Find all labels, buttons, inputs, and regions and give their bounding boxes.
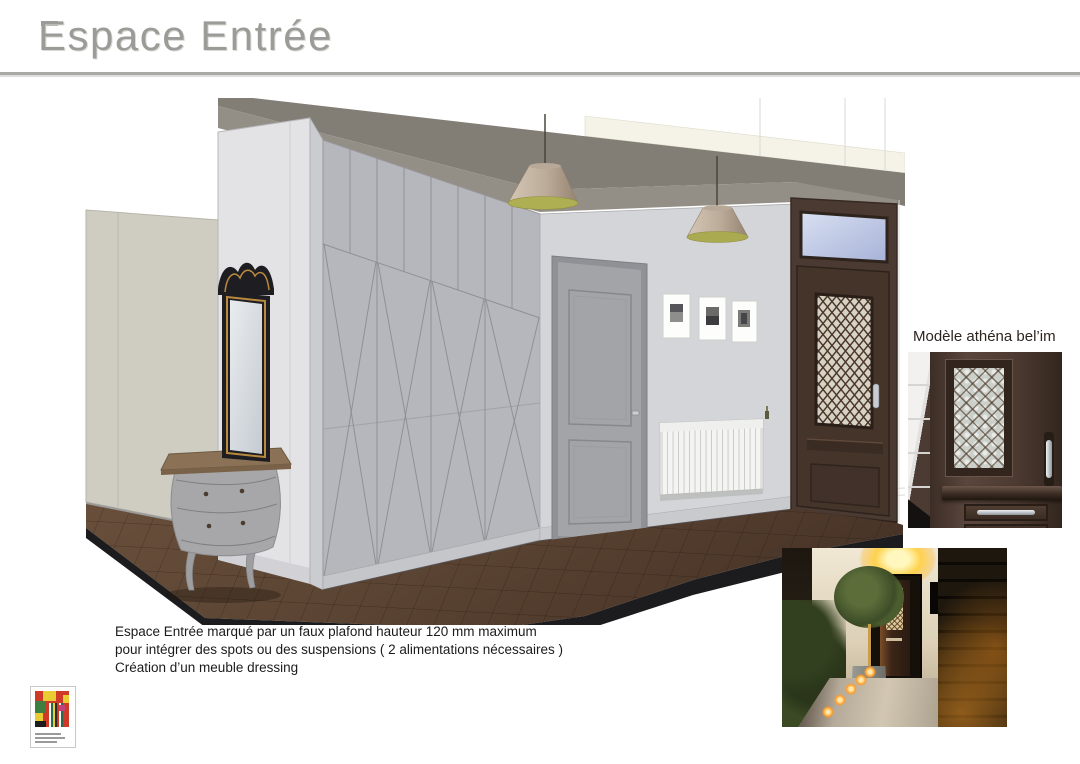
interior-door bbox=[552, 256, 647, 546]
entrance-night-photo bbox=[782, 548, 1007, 727]
logo-block bbox=[43, 691, 56, 701]
lattice-glass-panel bbox=[946, 360, 1012, 476]
logo-block bbox=[59, 705, 65, 711]
door-bottom-panel bbox=[964, 524, 1048, 528]
door-lower-rail bbox=[964, 504, 1048, 521]
photo-door-leaf bbox=[930, 352, 1062, 528]
annotation-text: Espace Entrée marqué par un faux plafond… bbox=[115, 623, 563, 677]
door-product-photo bbox=[908, 352, 1062, 528]
slide-canvas: Espace Entrée bbox=[0, 0, 1080, 764]
annotation-line: pour intégrer des spots ou des suspensio… bbox=[115, 641, 563, 659]
wooden-gate bbox=[938, 548, 1007, 727]
night-door-letterbox bbox=[886, 638, 902, 641]
door-model-label: Modèle athéna bel’im bbox=[913, 328, 1056, 345]
picture-frames bbox=[663, 294, 757, 342]
logo-block bbox=[35, 721, 46, 727]
logo-block bbox=[63, 695, 69, 703]
door-handle-icon bbox=[1046, 440, 1052, 478]
path-light bbox=[845, 683, 857, 695]
title-divider bbox=[0, 72, 1080, 77]
page-title: Espace Entrée bbox=[38, 12, 333, 60]
logo-text-placeholder bbox=[35, 741, 57, 743]
front-door bbox=[791, 198, 897, 529]
logo-text-placeholder bbox=[35, 733, 61, 735]
annotation-line: Espace Entrée marqué par un faux plafond… bbox=[115, 623, 563, 641]
path-light bbox=[822, 706, 834, 718]
annotation-line: Création d’un meuble dressing bbox=[115, 659, 563, 677]
logo-block bbox=[35, 713, 43, 721]
logo-text-placeholder bbox=[35, 737, 65, 739]
mirror bbox=[218, 263, 274, 462]
agency-logo bbox=[30, 686, 76, 748]
logo-artwork bbox=[35, 691, 69, 727]
path-light bbox=[834, 694, 846, 706]
door-molding-band bbox=[942, 486, 1062, 500]
door-bar-handle-icon bbox=[977, 510, 1035, 515]
entrance-3d-render bbox=[85, 98, 905, 625]
logo-block bbox=[35, 701, 45, 713]
path-light bbox=[864, 666, 876, 678]
potted-tree-trunk bbox=[868, 624, 871, 672]
